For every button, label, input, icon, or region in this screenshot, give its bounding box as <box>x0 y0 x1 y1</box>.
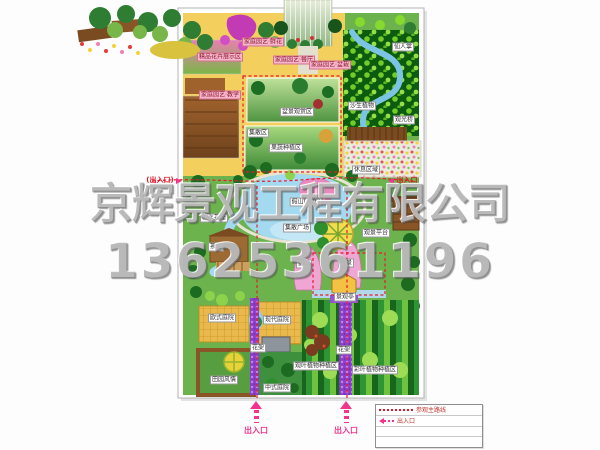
legend-box: 参观主路线 出入口 <box>375 404 483 448</box>
legend-row-route: 参观主路线 <box>376 405 482 416</box>
bottom-entrance-right-label: 出入口 <box>326 425 366 436</box>
bottom-entrance-right: 出入口 <box>326 401 366 436</box>
up-arrow-icon <box>250 401 262 409</box>
dashed-stem <box>254 410 259 423</box>
entrance-arrow-icon <box>379 418 394 424</box>
left-entrance-arrow-icon <box>176 178 182 184</box>
legend-route-label: 参观主路线 <box>416 405 446 414</box>
garden-master-plan-page: (出入口) 出入口 出入口 出入口 参观主路线 出入口 精品花卉展示区家庭园艺·… <box>0 0 600 450</box>
legend-row-empty-1 <box>376 427 482 438</box>
plan-artwork-svg <box>0 0 600 450</box>
dashed-stem <box>344 410 349 423</box>
bottom-entrance-left: 出入口 <box>236 401 276 436</box>
bottom-entrance-left-label: 出入口 <box>236 425 276 436</box>
up-arrow-icon <box>340 401 352 409</box>
left-entrance-label: (出入口) <box>146 175 173 185</box>
right-entrance-label: 出入口 <box>397 175 418 185</box>
right-entrance-arrow-icon <box>388 178 394 184</box>
dashed-route-line-icon <box>379 409 413 411</box>
legend-entrance-label: 出入口 <box>397 416 415 425</box>
legend-row-empty-2 <box>376 437 482 447</box>
legend-row-entrance: 出入口 <box>376 416 482 427</box>
